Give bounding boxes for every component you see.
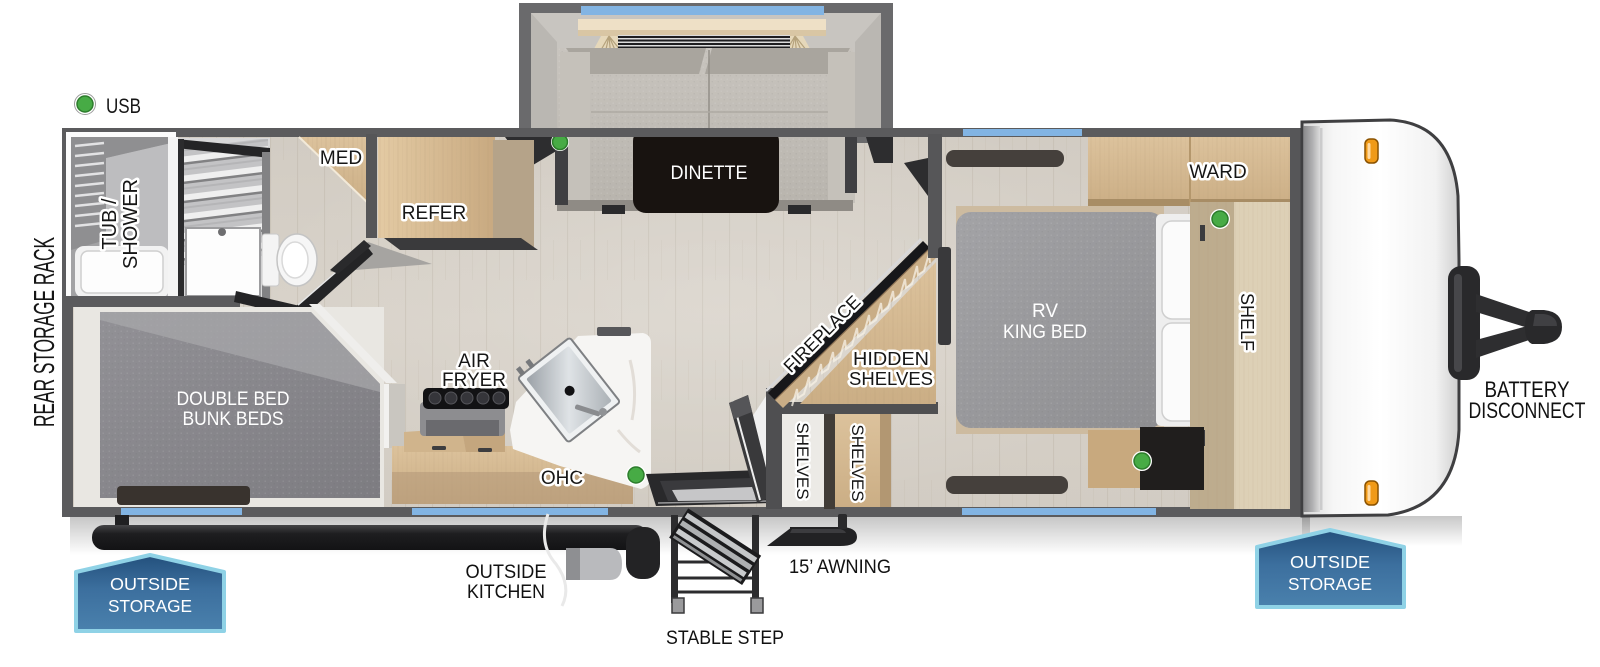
svg-text:WARD: WARD	[1189, 162, 1246, 183]
svg-text:OUTSIDE: OUTSIDE	[110, 574, 190, 594]
svg-text:FRYER: FRYER	[442, 370, 506, 391]
svg-text:SHELF: SHELF	[1237, 293, 1257, 351]
svg-text:SHELVES: SHELVES	[849, 369, 933, 389]
svg-text:SHELVES: SHELVES	[848, 424, 867, 501]
svg-text:SHELVES: SHELVES	[793, 422, 812, 499]
svg-text:OUTSIDE: OUTSIDE	[466, 562, 547, 583]
svg-text:RV: RV	[1032, 301, 1058, 322]
svg-text:DINETTE: DINETTE	[671, 163, 748, 184]
svg-text:AIR: AIR	[458, 351, 490, 372]
svg-text:STABLE STEP: STABLE STEP	[666, 628, 784, 649]
svg-text:REFER: REFER	[402, 203, 466, 224]
svg-text:HIDDEN: HIDDEN	[853, 349, 929, 369]
svg-text:REAR STORAGE RACK: REAR STORAGE RACK	[29, 237, 61, 427]
svg-text:OUTSIDE: OUTSIDE	[1290, 552, 1370, 572]
svg-text:DOUBLE BED: DOUBLE BED	[177, 389, 290, 410]
svg-text:TUB /: TUB /	[99, 198, 121, 250]
svg-text:MED: MED	[320, 148, 362, 169]
svg-text:OHC: OHC	[541, 468, 583, 489]
svg-text:DISCONNECT: DISCONNECT	[1469, 398, 1586, 423]
svg-text:STORAGE: STORAGE	[1288, 574, 1372, 594]
svg-text:KING BED: KING BED	[1003, 322, 1087, 343]
svg-text:KITCHEN: KITCHEN	[467, 582, 545, 603]
svg-text:STORAGE: STORAGE	[108, 596, 192, 616]
svg-text:SHOWER: SHOWER	[120, 179, 142, 269]
svg-text:USB: USB	[106, 95, 141, 118]
svg-text:15’ AWNING: 15’ AWNING	[789, 557, 891, 578]
svg-text:BUNK BEDS: BUNK BEDS	[183, 409, 284, 430]
